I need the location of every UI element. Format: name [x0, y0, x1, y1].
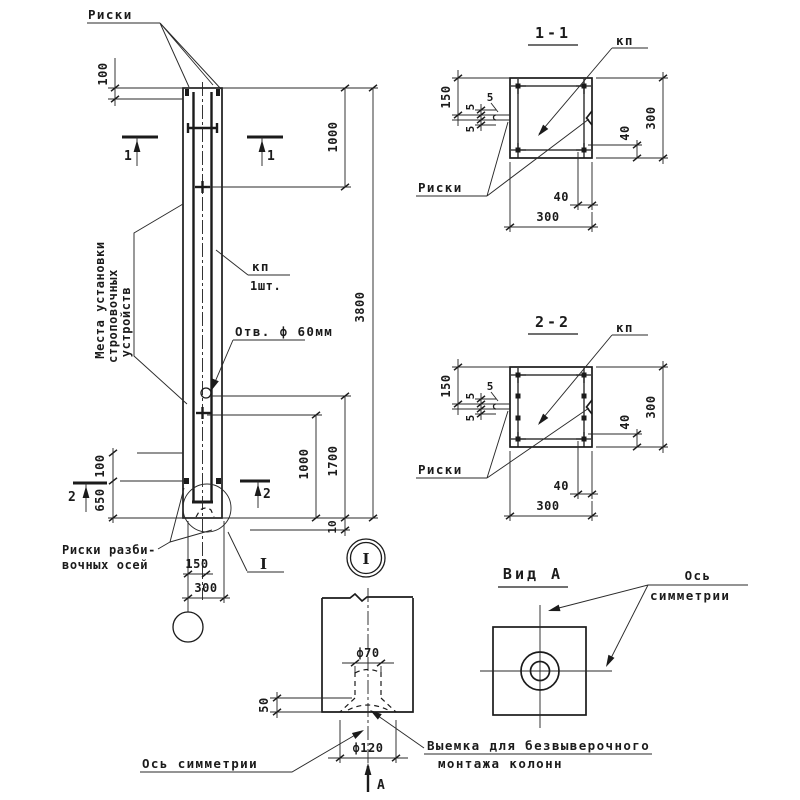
riska-tab-top-right	[216, 89, 220, 96]
svg-text:5: 5	[464, 393, 477, 400]
svg-text:Риски: Риски	[418, 180, 463, 195]
svg-text:Риски: Риски	[418, 462, 463, 477]
section-cut-1-left: 1	[122, 137, 158, 166]
svg-text:1: 1	[124, 149, 132, 164]
dim-50: 50	[257, 697, 271, 712]
svg-text:кп: кп	[252, 259, 270, 274]
axis-of-symmetry-callout: Ось симметрии	[140, 727, 366, 772]
section-1-1: 1-1 150 5 5 5 300 40	[416, 24, 668, 232]
svg-text:40: 40	[554, 479, 569, 493]
view-A-axis-callout: Ось симметрии	[547, 568, 748, 669]
svg-text:Отв. ф 60мм: Отв. ф 60мм	[235, 324, 333, 339]
bottom-recess-hidden	[196, 508, 214, 517]
section-2-2-riski-callout: Риски	[416, 408, 589, 478]
lifting-devices-bracket	[134, 204, 187, 404]
dim-10: 10	[326, 520, 339, 533]
section-cut-1-right: 1	[247, 137, 283, 166]
view-A-direction-arrow: А	[365, 763, 385, 793]
axis-bubble	[173, 612, 203, 642]
dim-f70: ф70	[356, 646, 379, 660]
svg-text:А: А	[377, 778, 385, 793]
svg-text:Места установки: Места установки	[93, 241, 107, 358]
section-1-1-rebar	[511, 79, 591, 158]
svg-text:150: 150	[439, 85, 453, 108]
riska-tab-top-left	[185, 89, 189, 96]
svg-text:кп: кп	[616, 33, 634, 48]
detail-marker: I	[362, 550, 369, 568]
svg-text:Ось симметрии: Ось симметрии	[142, 756, 258, 771]
section-2-2-rebar	[511, 368, 591, 447]
svg-text:300: 300	[536, 499, 559, 513]
svg-text:5: 5	[464, 126, 477, 133]
detail-I-view: I ф70 50 ф120 А Ось	[140, 539, 652, 793]
svg-text:2: 2	[263, 487, 271, 502]
detail-reference: I	[228, 532, 284, 573]
svg-text:1: 1	[267, 149, 275, 164]
section-2-2-cage	[518, 375, 584, 439]
dim-300: 300	[194, 581, 217, 595]
view-A-title: Вид А	[503, 565, 563, 583]
svg-text:монтажа колонн: монтажа колонн	[438, 756, 563, 771]
riski-top-label: Риски	[88, 7, 133, 22]
riska-tab-side-right	[216, 478, 221, 484]
svg-text:Риски разби-: Риски разби-	[62, 543, 156, 557]
dim-1000-bottom: 1000	[297, 449, 311, 480]
section-2-2-title: 2-2	[535, 313, 571, 331]
svg-text:300: 300	[644, 106, 658, 129]
riski-top-leaders	[160, 23, 221, 89]
svg-text:Ось: Ось	[685, 568, 712, 583]
dim-150: 150	[185, 557, 208, 571]
svg-text:симметрии: симметрии	[650, 588, 730, 603]
svg-text:300: 300	[644, 395, 658, 418]
dim-1000-top: 1000	[326, 122, 340, 153]
svg-text:устройств: устройств	[119, 287, 133, 357]
column-drawing: Риски 100 1 1 2	[0, 0, 800, 800]
view-A: Вид А Ось симметрии	[480, 565, 748, 728]
recess-callout: Выемка для безвыверочного монтажа колонн	[368, 707, 652, 771]
section-cut-2-right: 2	[240, 481, 271, 508]
kp-callout: кп 1шт.	[216, 250, 290, 293]
section-1-1-outline	[510, 78, 592, 158]
svg-text:вочных осей: вочных осей	[62, 558, 148, 572]
svg-text:5: 5	[464, 415, 477, 422]
section-1-1-cage	[518, 86, 584, 150]
elevation-view: Риски 100 1 1 2	[62, 7, 378, 642]
dim-1700: 1700	[326, 446, 340, 477]
svg-text:40: 40	[618, 414, 632, 429]
dim-650: 650	[93, 488, 107, 511]
svg-text:40: 40	[618, 125, 632, 140]
svg-text:5: 5	[487, 380, 494, 393]
section-2-2-outline	[510, 367, 592, 447]
svg-text:150: 150	[439, 374, 453, 397]
section-1-1-title: 1-1	[535, 24, 571, 42]
dim-100-top: 100	[96, 62, 110, 85]
svg-text:5: 5	[487, 91, 494, 104]
svg-text:строповочных: строповочных	[106, 269, 120, 363]
svg-text:кп: кп	[616, 320, 634, 335]
detail-top-break-line	[322, 594, 413, 601]
svg-text:1шт.: 1шт.	[250, 279, 281, 293]
svg-text:2: 2	[68, 490, 76, 505]
svg-text:300: 300	[536, 210, 559, 224]
svg-text:40: 40	[554, 190, 569, 204]
engineering-drawing-page: Риски 100 1 1 2	[0, 0, 800, 800]
dim-f120: ф120	[353, 741, 384, 755]
lifting-devices-label: Места установки строповочных устройств	[93, 204, 187, 404]
dim-100-axes: 100	[93, 454, 107, 477]
dim-3800: 3800	[353, 292, 367, 323]
svg-text:Выемка для безвыверочного: Выемка для безвыверочного	[427, 738, 650, 753]
svg-text:5: 5	[464, 104, 477, 111]
riska-tab-side-left	[184, 478, 189, 484]
svg-text:I: I	[260, 555, 267, 573]
hole-callout: Отв. ф 60мм	[208, 324, 333, 392]
section-2-2: 2-2 150 5 5 5 300 40	[416, 313, 668, 521]
